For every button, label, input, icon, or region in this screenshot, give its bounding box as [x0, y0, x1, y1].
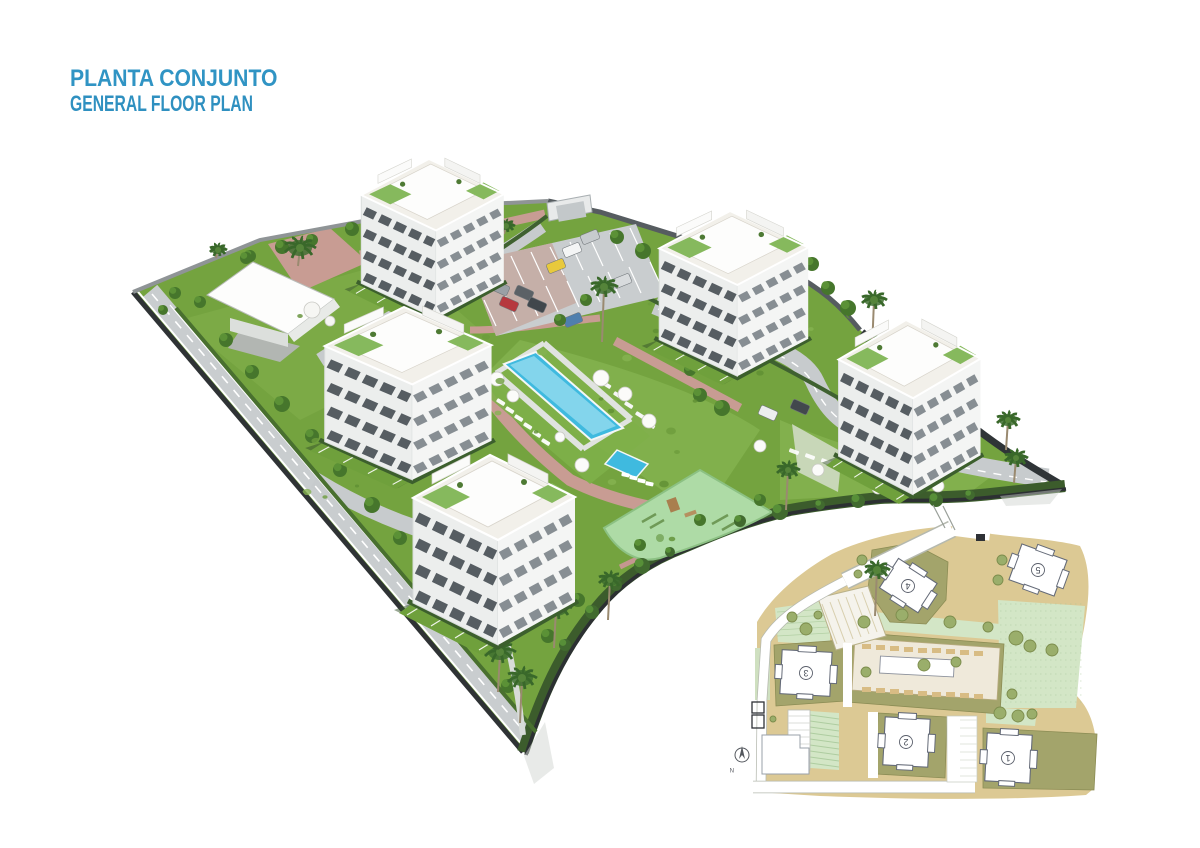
svg-text:3: 3	[803, 668, 808, 678]
svg-text:4: 4	[905, 581, 910, 591]
svg-text:2: 2	[903, 737, 908, 747]
svg-text:5: 5	[1035, 565, 1040, 575]
svg-text:1: 1	[1005, 753, 1010, 763]
svg-text:N: N	[730, 766, 734, 772]
